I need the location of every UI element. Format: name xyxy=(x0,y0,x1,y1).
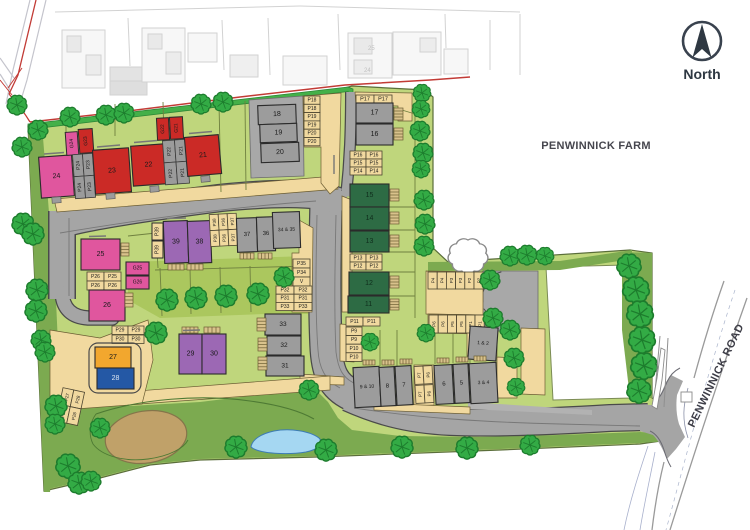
svg-text:P22: P22 xyxy=(166,147,173,157)
svg-text:P13: P13 xyxy=(370,255,379,261)
svg-text:P37: P37 xyxy=(230,233,235,242)
svg-text:P4: P4 xyxy=(430,277,435,283)
svg-text:P11: P11 xyxy=(350,319,359,325)
svg-text:29: 29 xyxy=(187,351,195,358)
svg-text:P10: P10 xyxy=(350,346,359,352)
svg-text:P20: P20 xyxy=(308,139,317,145)
svg-text:P20: P20 xyxy=(308,131,317,137)
svg-text:P29: P29 xyxy=(116,328,125,334)
svg-text:P36: P36 xyxy=(221,217,226,226)
svg-text:P37: P37 xyxy=(230,217,235,226)
svg-text:23: 23 xyxy=(108,167,116,175)
svg-text:26: 26 xyxy=(103,302,111,309)
svg-text:20: 20 xyxy=(276,149,284,156)
svg-text:14: 14 xyxy=(366,215,374,222)
svg-text:P33: P33 xyxy=(281,304,290,310)
svg-text:24: 24 xyxy=(52,173,60,181)
svg-text:P6: P6 xyxy=(441,321,446,327)
svg-text:G25: G25 xyxy=(133,266,143,272)
svg-text:25: 25 xyxy=(97,251,105,258)
svg-text:P12: P12 xyxy=(370,263,379,269)
svg-text:P21: P21 xyxy=(180,168,187,178)
svg-text:32: 32 xyxy=(280,342,288,349)
svg-text:P15: P15 xyxy=(370,160,379,166)
svg-text:P10: P10 xyxy=(350,354,359,360)
svg-text:P32: P32 xyxy=(299,287,308,293)
svg-text:P22: P22 xyxy=(168,169,175,179)
svg-text:39: 39 xyxy=(172,238,180,245)
svg-text:3 & 4: 3 & 4 xyxy=(478,380,490,387)
svg-text:P17: P17 xyxy=(378,97,388,103)
svg-text:P9: P9 xyxy=(351,337,357,343)
svg-text:P33: P33 xyxy=(299,304,308,310)
svg-text:P29: P29 xyxy=(132,328,141,334)
svg-text:P16: P16 xyxy=(370,152,379,158)
svg-text:P18: P18 xyxy=(308,97,317,103)
svg-text:27: 27 xyxy=(109,354,117,361)
svg-text:P3: P3 xyxy=(458,277,463,283)
svg-text:P7: P7 xyxy=(418,391,423,397)
svg-text:P11: P11 xyxy=(367,319,376,325)
svg-text:34 & 35: 34 & 35 xyxy=(278,227,296,234)
svg-text:P31: P31 xyxy=(299,296,308,302)
svg-text:P26: P26 xyxy=(91,274,100,280)
svg-text:21: 21 xyxy=(199,152,207,160)
svg-text:P32: P32 xyxy=(281,287,290,293)
svg-text:P7: P7 xyxy=(417,372,422,378)
svg-text:P15: P15 xyxy=(354,160,363,166)
svg-text:P39: P39 xyxy=(155,227,161,236)
svg-text:P17: P17 xyxy=(360,97,370,103)
svg-text:17: 17 xyxy=(371,110,379,117)
svg-text:P24: P24 xyxy=(77,182,84,192)
svg-text:1 & 2: 1 & 2 xyxy=(477,340,489,347)
svg-text:P23: P23 xyxy=(85,160,92,170)
svg-text:P25: P25 xyxy=(108,274,117,280)
svg-text:P5: P5 xyxy=(450,321,455,327)
svg-text:19: 19 xyxy=(274,129,282,136)
svg-text:P4: P4 xyxy=(440,277,445,283)
svg-text:P39: P39 xyxy=(155,245,161,254)
svg-text:P16: P16 xyxy=(354,152,363,158)
svg-text:P18: P18 xyxy=(308,106,317,112)
svg-text:25: 25 xyxy=(368,46,375,52)
svg-text:P30: P30 xyxy=(132,337,141,343)
svg-text:P2: P2 xyxy=(467,277,472,283)
svg-text:P38: P38 xyxy=(212,234,217,243)
svg-text:38: 38 xyxy=(195,238,203,245)
svg-text:P6: P6 xyxy=(431,321,436,327)
svg-text:P19: P19 xyxy=(308,114,317,120)
svg-text:11: 11 xyxy=(365,301,372,308)
svg-text:P19: P19 xyxy=(308,122,317,128)
svg-text:P9: P9 xyxy=(351,329,357,335)
svg-text:P12: P12 xyxy=(354,263,363,269)
svg-text:P35: P35 xyxy=(297,261,306,267)
svg-text:31: 31 xyxy=(281,363,289,370)
svg-text:P34: P34 xyxy=(297,270,306,276)
svg-text:P31: P31 xyxy=(281,296,290,302)
svg-text:P38: P38 xyxy=(212,218,217,227)
svg-text:G22: G22 xyxy=(160,124,166,134)
svg-text:P13: P13 xyxy=(354,255,363,261)
svg-text:P30: P30 xyxy=(116,337,125,343)
svg-text:G24: G24 xyxy=(69,138,76,148)
svg-text:P5: P5 xyxy=(459,321,464,327)
svg-text:16: 16 xyxy=(371,131,379,138)
svg-text:P14: P14 xyxy=(354,168,363,174)
svg-text:P1: P1 xyxy=(477,321,482,327)
svg-text:PENWINNICK FARM: PENWINNICK FARM xyxy=(541,140,651,152)
svg-text:33: 33 xyxy=(279,321,287,328)
svg-text:13: 13 xyxy=(366,238,374,245)
svg-text:9 & 10: 9 & 10 xyxy=(360,384,375,391)
svg-text:G26: G26 xyxy=(133,280,143,286)
svg-text:24: 24 xyxy=(364,68,371,74)
svg-text:P26: P26 xyxy=(108,283,117,289)
svg-text:36: 36 xyxy=(263,231,271,237)
svg-text:12: 12 xyxy=(365,280,373,287)
svg-text:P14: P14 xyxy=(370,168,379,174)
svg-text:G23: G23 xyxy=(83,136,90,146)
svg-text:15: 15 xyxy=(366,192,374,199)
svg-text:P3: P3 xyxy=(449,277,454,283)
svg-text:30: 30 xyxy=(210,351,218,358)
svg-text:18: 18 xyxy=(273,111,281,118)
svg-text:37: 37 xyxy=(244,232,252,238)
svg-text:28: 28 xyxy=(112,375,120,382)
svg-text:P21: P21 xyxy=(178,146,185,156)
svg-text:P6: P6 xyxy=(427,390,432,396)
svg-text:P26: P26 xyxy=(91,283,100,289)
svg-text:G21: G21 xyxy=(173,123,179,133)
svg-text:P24: P24 xyxy=(75,160,82,170)
svg-text:22: 22 xyxy=(144,161,152,169)
svg-text:North: North xyxy=(683,66,720,82)
svg-text:P23: P23 xyxy=(87,182,94,192)
svg-text:P36: P36 xyxy=(221,233,226,242)
svg-text:P6: P6 xyxy=(426,371,431,377)
